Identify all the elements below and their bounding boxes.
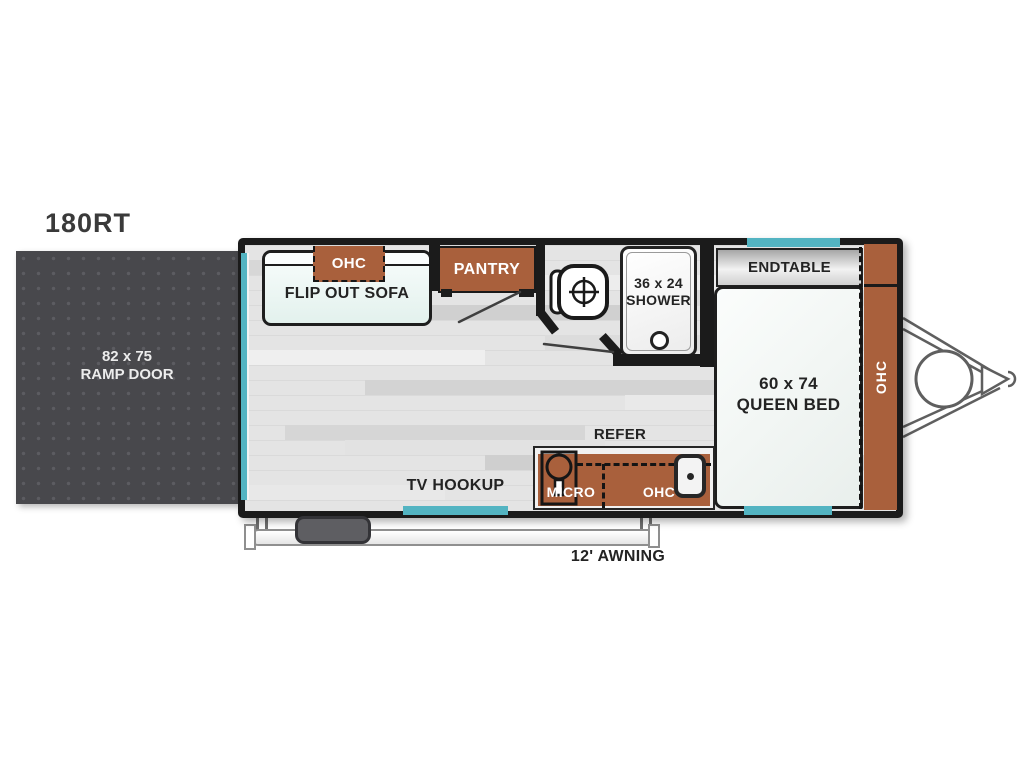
ramp-door: 82 x 75 RAMP DOOR: [16, 251, 238, 504]
floorplan-canvas: 180RT 82 x 75 RAMP DOOR FLIP OUT SOFA OH…: [0, 0, 1024, 768]
bed-label: 60 x 74 QUEEN BED: [717, 373, 860, 415]
queen-bed: 60 x 74 QUEEN BED: [714, 286, 863, 509]
bed-dashed-boundary: [859, 247, 862, 509]
endtable-edge-line: [864, 284, 897, 287]
bedroom-divider-wall: [700, 238, 714, 367]
ramp-door-label: 82 x 75 RAMP DOOR: [16, 348, 238, 384]
bed-size: 60 x 74: [717, 373, 860, 394]
floor-plank: [245, 350, 485, 365]
door-jamb: [441, 289, 452, 297]
model-label: 180RT: [45, 208, 131, 239]
ramp-door-name: RAMP DOOR: [16, 366, 238, 384]
tv-hookup-label: TV HOOKUP: [398, 477, 513, 495]
awning-label: 12' AWNING: [558, 548, 678, 566]
propane-tank-icon: [916, 351, 972, 407]
bathroom-wall: [613, 354, 710, 366]
door-jamb: [519, 289, 534, 297]
shower-drain-icon: [650, 331, 669, 350]
overhead-cabinet-sofa: OHC: [313, 246, 385, 282]
shower-label: 36 x 24 SHOWER: [623, 275, 694, 309]
range-knob: [687, 473, 694, 480]
endtable-label: ENDTABLE: [748, 259, 831, 276]
awning-end-cap: [244, 524, 256, 550]
window-strip: [747, 238, 840, 247]
toilet-icon: [548, 264, 610, 320]
kitchen-ohc-label: OHC: [629, 484, 689, 500]
pantry-cabinet: PANTRY: [438, 246, 536, 293]
entry-door-strip: [403, 506, 508, 515]
micro-label: MICRO: [541, 484, 601, 500]
sofa-ohc-label: OHC: [332, 255, 367, 272]
awning-end-cap: [648, 524, 660, 548]
ramp-door-size: 82 x 75: [16, 348, 238, 366]
entry-step: [295, 516, 371, 544]
counter-dashed-line: [602, 464, 605, 508]
ramp-opening-strip: [241, 253, 249, 500]
floor-plank: [285, 425, 585, 440]
refer-label: REFER: [575, 426, 665, 443]
bathroom-wall: [536, 242, 545, 316]
bed-name: QUEEN BED: [717, 394, 860, 415]
hitch-icon: [896, 298, 1024, 473]
right-ohc-label: OHC: [873, 360, 889, 394]
sofa-label: FLIP OUT SOFA: [265, 285, 429, 303]
pantry-label: PANTRY: [454, 261, 520, 279]
kitchen-counter: MICRO OHC: [533, 446, 715, 510]
window-strip: [744, 506, 832, 515]
shower-name: SHOWER: [623, 292, 694, 309]
endtable: ENDTABLE: [716, 248, 863, 287]
shower-stall: 36 x 24 SHOWER: [620, 246, 697, 357]
wall: [429, 242, 440, 291]
shower-size: 36 x 24: [623, 275, 694, 292]
